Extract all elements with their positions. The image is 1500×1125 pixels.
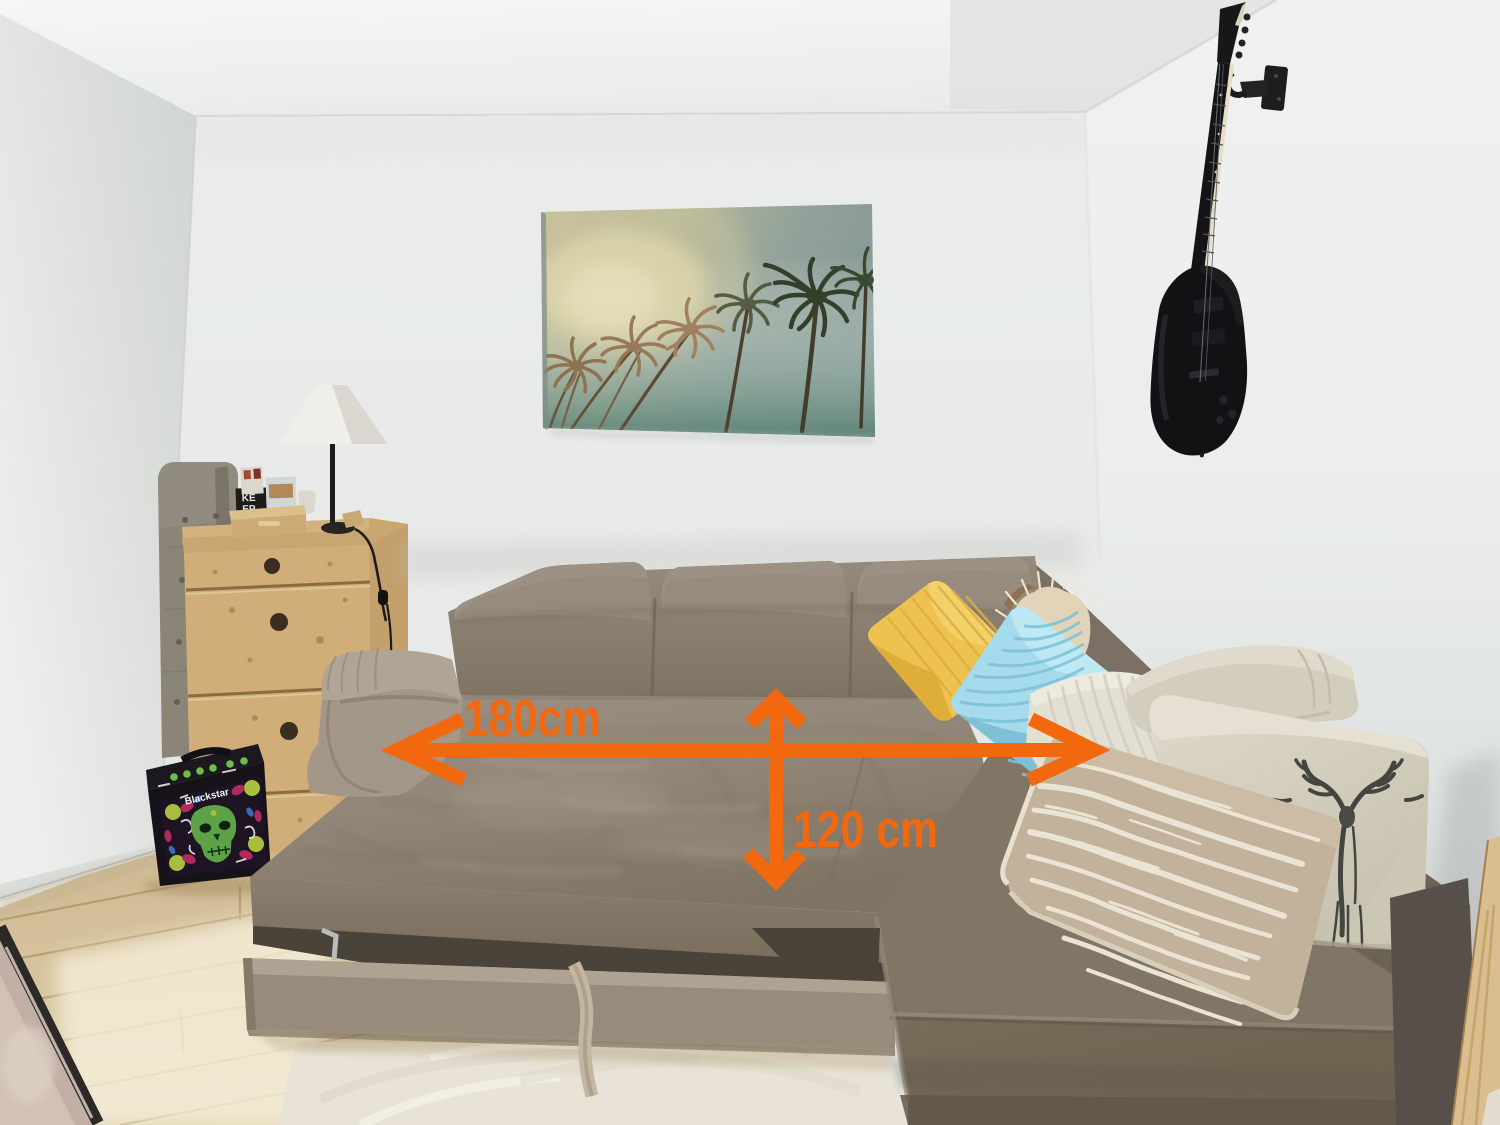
svg-text:180cm: 180cm	[464, 690, 601, 748]
svg-text:120 cm: 120 cm	[793, 801, 938, 859]
svg-text:KE: KE	[242, 493, 257, 504]
